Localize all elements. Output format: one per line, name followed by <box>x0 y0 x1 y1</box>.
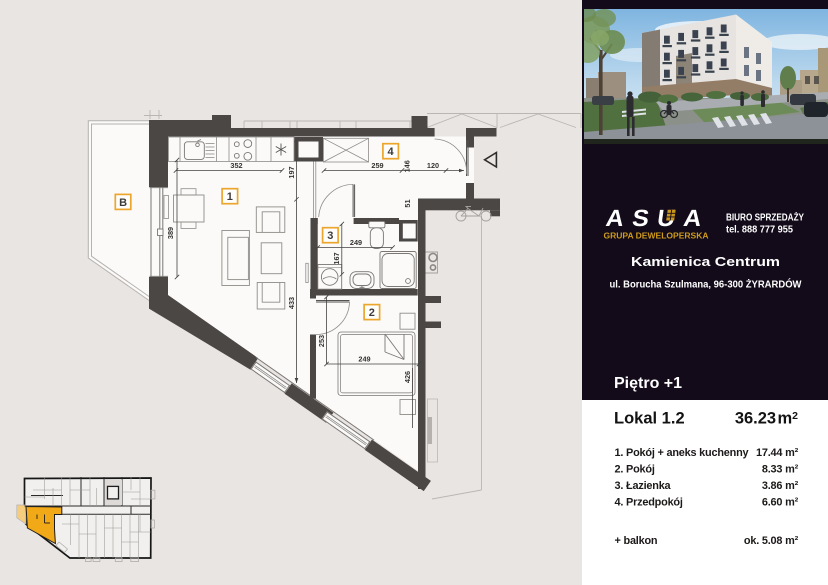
svg-text:3. Łazienka: 3. Łazienka <box>615 480 672 492</box>
svg-text:253: 253 <box>317 335 326 347</box>
svg-text:249: 249 <box>358 354 370 363</box>
svg-text:ASUA: ASUA <box>604 206 712 232</box>
svg-text:GRUPA DEWELOPERSKA: GRUPA DEWELOPERSKA <box>604 232 709 241</box>
svg-text:+ balkon: + balkon <box>615 535 658 547</box>
svg-text:249: 249 <box>350 238 362 247</box>
svg-text:1. Pokój + aneks kuchenny: 1. Pokój + aneks kuchenny <box>615 447 749 459</box>
svg-text:BIURO SPRZEDAŻY: BIURO SPRZEDAŻY <box>726 211 804 224</box>
svg-text:3.86 m²: 3.86 m² <box>762 480 799 492</box>
svg-text:51: 51 <box>403 199 412 207</box>
svg-text:17.44 m²: 17.44 m² <box>756 447 799 459</box>
svg-text:Piętro +1: Piętro +1 <box>614 375 682 392</box>
svg-text:ul. Borucha Szulmana, 96-300 Ż: ul. Borucha Szulmana, 96-300 ŻYRARDÓW <box>610 278 802 291</box>
svg-text:197: 197 <box>287 166 296 178</box>
svg-text:2: 2 <box>369 307 375 319</box>
svg-text:3: 3 <box>327 230 333 242</box>
svg-text:4. Przedpokój: 4. Przedpokój <box>615 497 683 509</box>
svg-text:146: 146 <box>403 160 412 172</box>
svg-text:167: 167 <box>332 252 341 264</box>
svg-text:2. Pokój: 2. Pokój <box>615 464 655 476</box>
svg-text:8.33 m²: 8.33 m² <box>762 464 799 476</box>
svg-text:Lokal 1.2: Lokal 1.2 <box>614 410 685 428</box>
svg-text:6.60 m²: 6.60 m² <box>762 497 799 509</box>
svg-text:ok. 5.08 m²: ok. 5.08 m² <box>744 535 799 547</box>
svg-text:433: 433 <box>287 297 296 309</box>
svg-text:tel. 888 777 955: tel. 888 777 955 <box>726 224 793 236</box>
svg-text:389: 389 <box>166 227 175 239</box>
svg-text:352: 352 <box>230 161 242 170</box>
svg-text:426: 426 <box>403 371 412 383</box>
svg-text:1: 1 <box>227 191 233 203</box>
svg-text:259: 259 <box>371 161 383 170</box>
svg-text:36.23 m2: 36.23 m2 <box>735 410 798 428</box>
svg-text:4: 4 <box>388 146 395 158</box>
svg-text:120: 120 <box>427 161 439 170</box>
svg-text:Kamienica Centrum: Kamienica Centrum <box>631 254 780 269</box>
svg-text:B: B <box>119 197 127 209</box>
